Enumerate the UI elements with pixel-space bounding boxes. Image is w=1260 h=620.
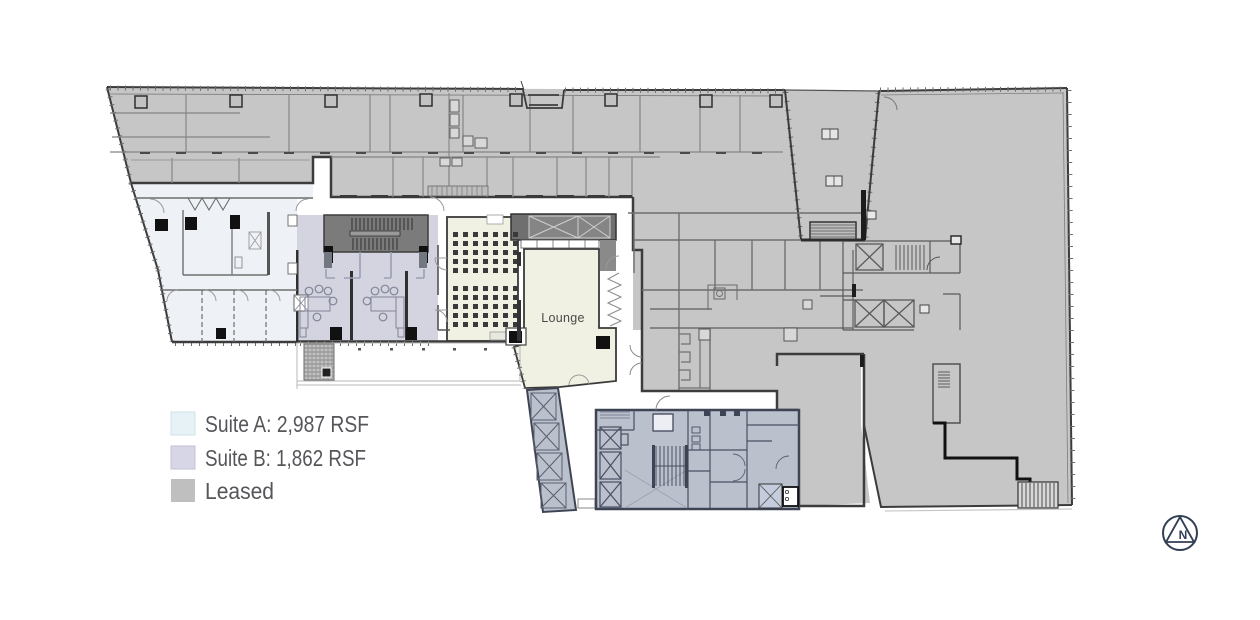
svg-text:N: N (1179, 528, 1188, 542)
svg-text:Suite B: 1,862 RSF: Suite B: 1,862 RSF (205, 445, 366, 471)
svg-text:Leased: Leased (205, 478, 274, 504)
svg-text:Suite A: 2,987 RSF: Suite A: 2,987 RSF (205, 411, 369, 437)
svg-text:Lounge: Lounge (541, 311, 585, 325)
